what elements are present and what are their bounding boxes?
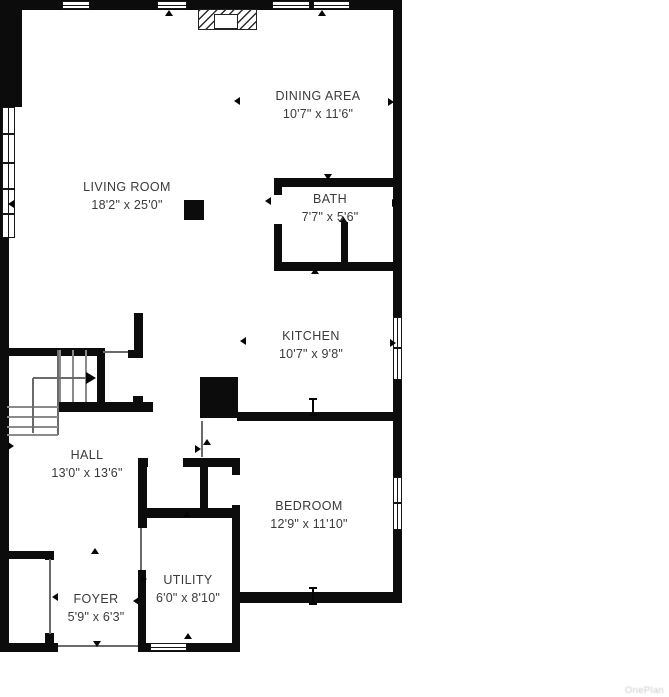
window-center-line [273,5,309,6]
room-label-bedroom: BEDROOM12'9" x 11'10" [270,497,347,533]
wall [184,200,204,220]
stair-tread [72,350,73,402]
wall [232,518,240,651]
stair-direction-line [33,377,88,378]
door-marker-icon [93,641,101,647]
room-name: DINING AREA [276,87,361,105]
wall [9,8,22,107]
door-marker-icon [184,633,192,639]
door-marker-icon [388,98,394,106]
wall-opening-marker [312,399,314,415]
room-dimensions: 6'0" x 8'10" [156,589,220,607]
window [62,1,90,9]
window-center-line [314,5,349,6]
door-marker-icon [91,548,99,554]
door-marker-icon [183,511,191,517]
window-mullion [2,162,15,164]
wall [274,262,402,271]
room-label-hall: HALL13'0" x 13'6" [51,446,122,482]
door-marker-icon [390,339,396,347]
door-marker-icon [392,199,398,207]
room-label-foyer: FOYER5'9" x 6'3" [68,590,125,626]
room-label-dining-area: DINING AREA10'7" x 11'6" [276,87,361,123]
window-mullion [2,188,15,190]
wall [97,348,105,404]
door-marker-icon [240,337,246,345]
door-opening-line [140,528,141,570]
wall-opening-marker [309,587,317,589]
room-label-living-room: LIVING ROOM18'2" x 25'0" [83,178,171,214]
window-center-line [151,647,186,648]
room-dimensions: 10'7" x 11'6" [276,105,361,123]
door-marker-icon [265,197,271,205]
door-marker-icon [141,575,147,583]
room-label-bath: BATH7'7" x 5'6" [302,190,359,226]
room-name: FOYER [68,590,125,608]
door-marker-icon [8,200,14,208]
door-marker-icon [165,10,173,16]
wall [133,396,143,409]
stair-direction-line [32,378,33,433]
wall [274,178,402,187]
wall [45,633,54,643]
door-marker-icon [311,268,319,274]
room-name: BEDROOM [270,497,347,515]
wall [232,458,240,475]
door-marker-icon [234,97,240,105]
door-marker-icon [52,593,58,601]
window-mullion [2,213,15,215]
window-center-line [63,5,89,6]
wall [138,458,147,528]
room-dimensions: 7'7" x 5'6" [302,208,359,226]
room-label-kitchen: KITCHEN10'7" x 9'8" [279,327,343,363]
door-opening-line [49,559,50,634]
window [157,1,187,9]
window [150,643,187,651]
door-marker-icon [203,439,211,445]
wall [5,348,103,356]
floor-plan-canvas: OnePlan LIVING ROOM18'2" x 25'0"DINING A… [0,0,669,697]
fireplace-opening [214,14,238,29]
window-center-line [158,5,186,6]
door-marker-icon [318,10,326,16]
stair-tread [7,434,58,435]
stair-up-arrow-icon [86,372,96,384]
wall-opening-marker [309,603,317,605]
door-marker-icon [324,174,332,180]
room-dimensions: 10'7" x 9'8" [279,345,343,363]
door-marker-icon [133,597,139,605]
room-dimensions: 18'2" x 25'0" [83,196,171,214]
window-mullion [393,347,402,349]
window [2,107,15,238]
door-marker-icon [195,445,201,453]
watermark: OnePlan [625,685,664,696]
door-marker-icon [8,442,14,450]
room-name: UTILITY [156,571,220,589]
wall [232,592,402,603]
wall [274,187,282,195]
room-name: LIVING ROOM [83,178,171,196]
wall-opening-marker [309,414,317,416]
door-opening-line [103,351,128,352]
room-dimensions: 5'9" x 6'3" [68,608,125,626]
wall-opening-marker [309,398,317,400]
window-mullion [393,502,402,504]
window-mullion [2,133,15,135]
wall [134,313,143,358]
wall [200,377,238,418]
stair-tread [59,350,60,402]
wall-opening-marker [312,588,314,604]
wall [0,643,58,652]
room-name: BATH [302,190,359,208]
window-center-line [8,108,9,237]
window [313,1,350,9]
wall [237,412,402,421]
room-name: KITCHEN [279,327,343,345]
window [272,1,310,9]
room-dimensions: 12'9" x 11'10" [270,515,347,533]
room-label-utility: UTILITY6'0" x 8'10" [156,571,220,607]
room-name: HALL [51,446,122,464]
room-dimensions: 13'0" x 13'6" [51,464,122,482]
